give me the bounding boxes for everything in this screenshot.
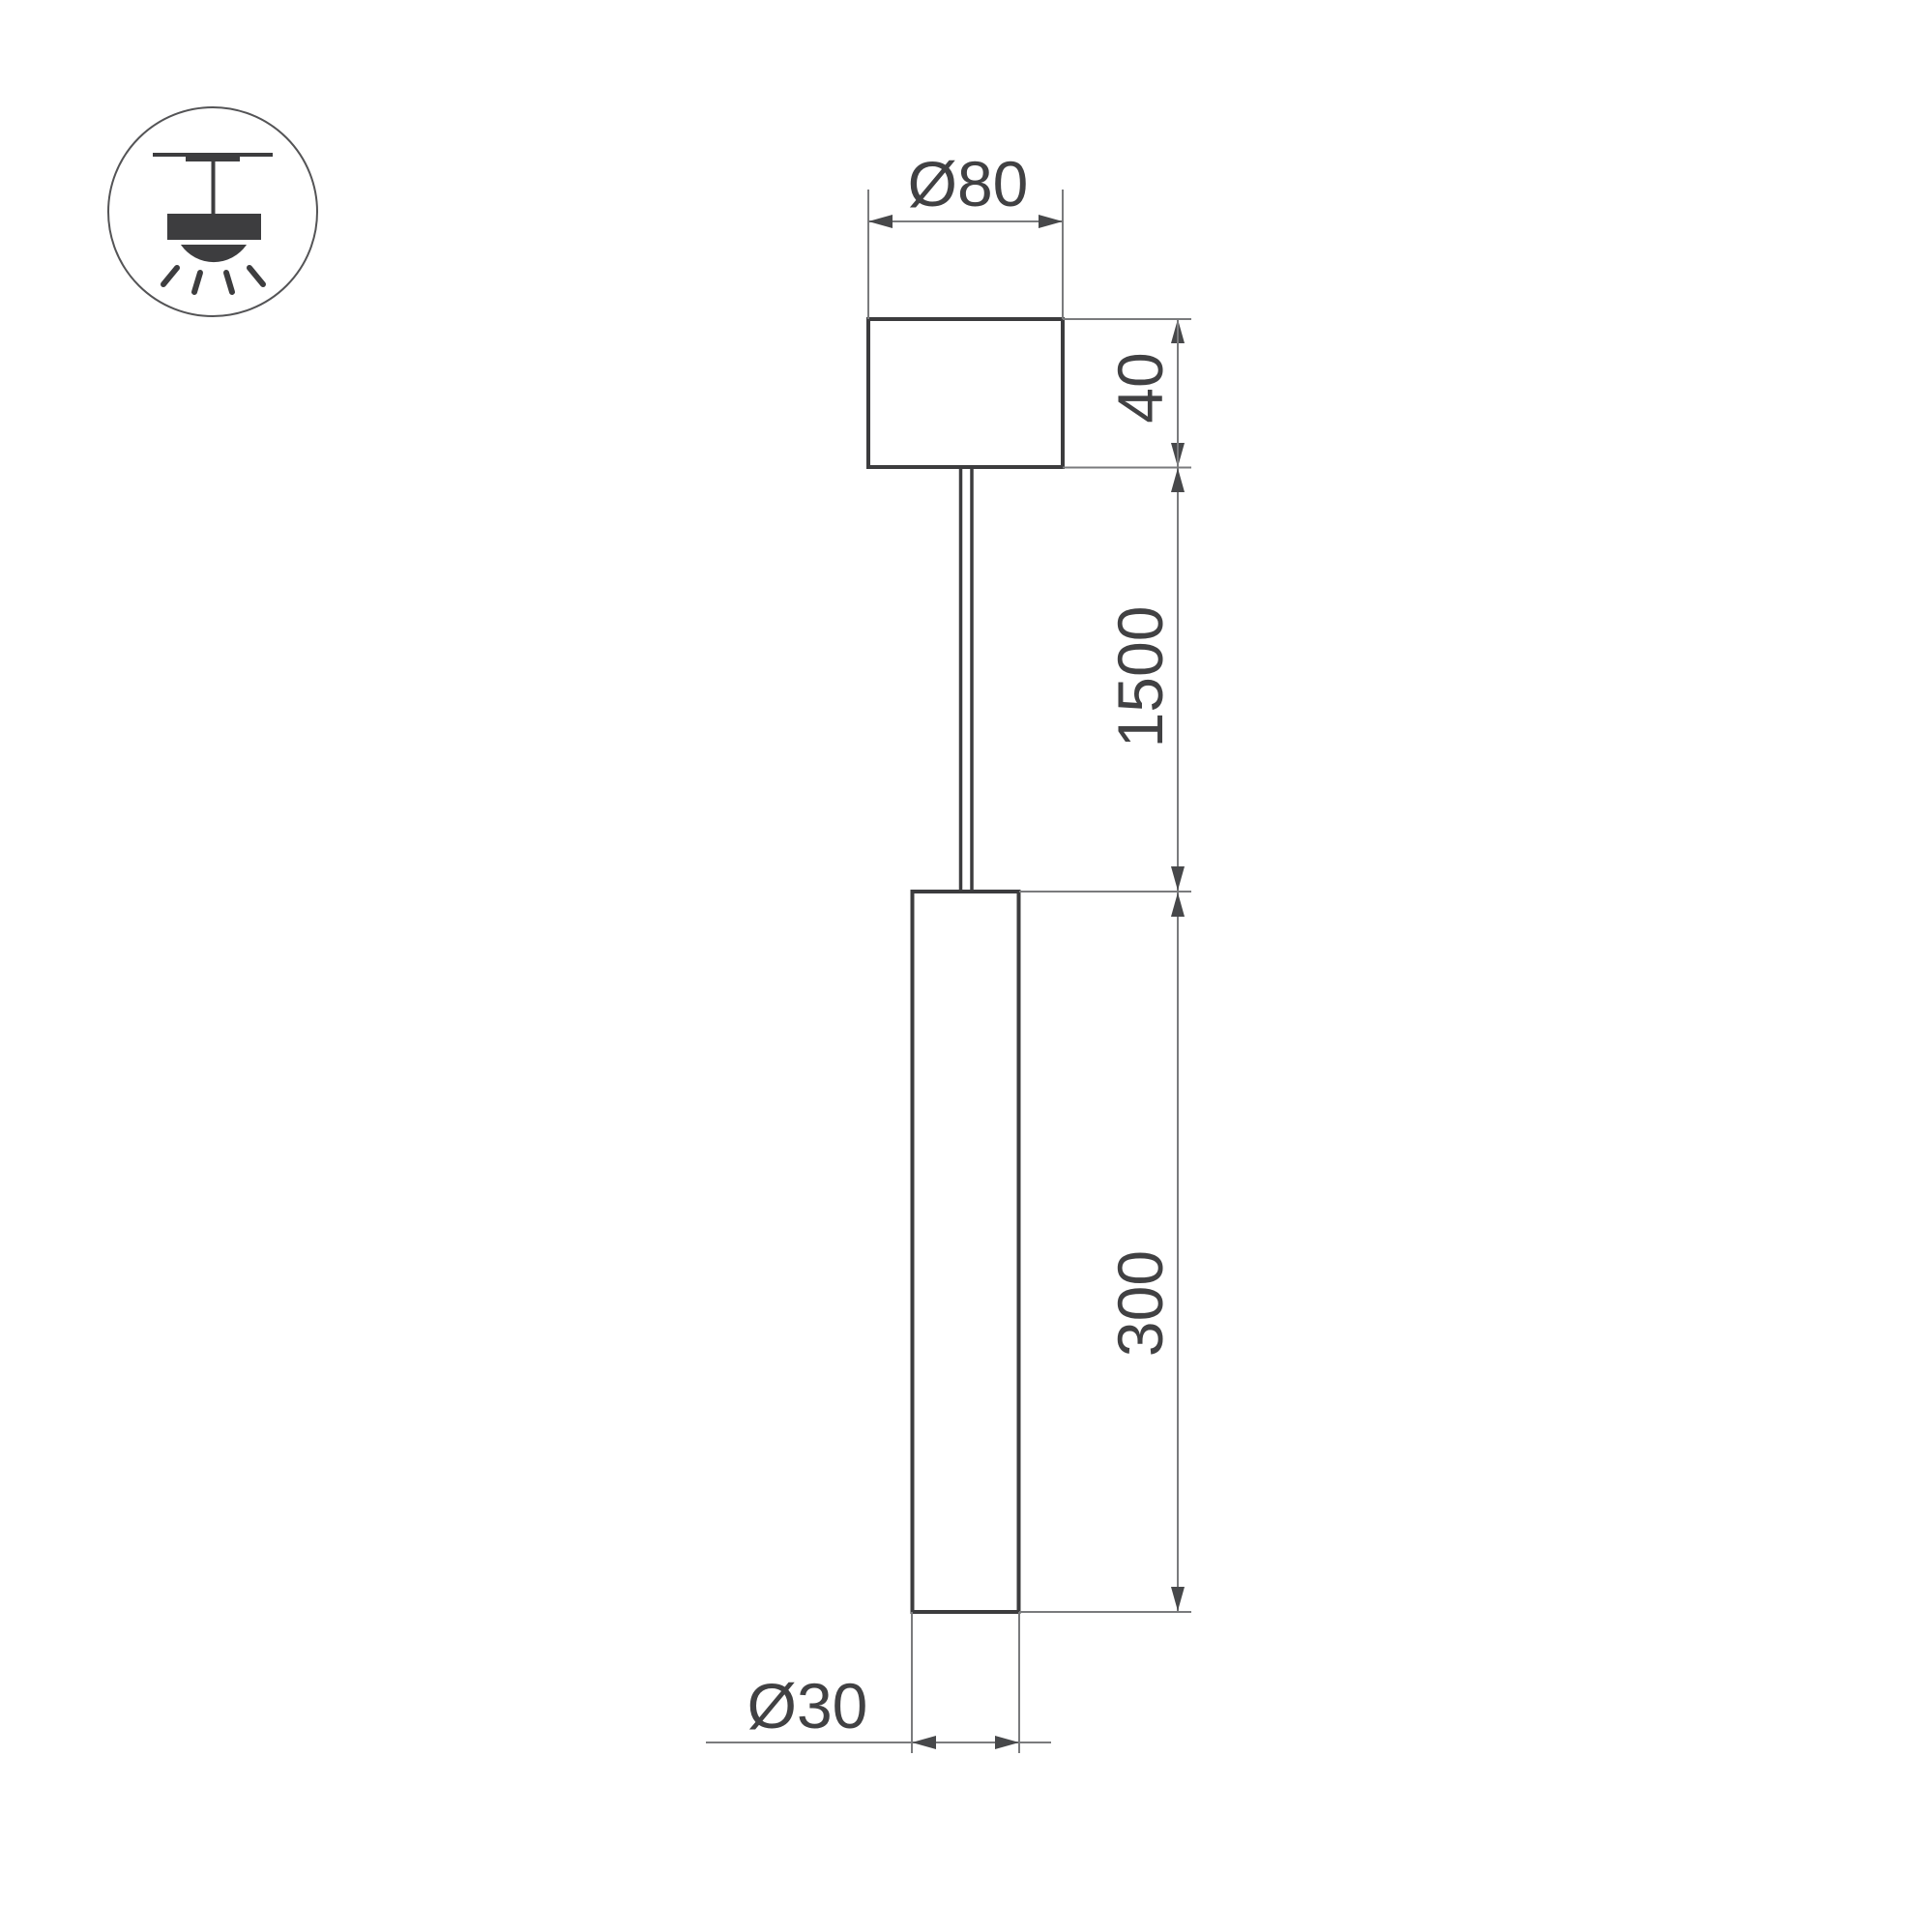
ceiling-pendant-light-icon	[108, 107, 317, 316]
dim-label-suspension-length: 1500	[1104, 606, 1176, 748]
arrowhead-left	[868, 215, 893, 228]
dim-label-tube-diameter: Ø30	[747, 1670, 868, 1742]
arrowhead-right	[995, 1736, 1019, 1749]
icon-lamp-body	[167, 214, 261, 240]
tube-body-outline	[913, 892, 1019, 1612]
arrowhead-up	[1171, 893, 1185, 917]
arrowhead-down	[1171, 866, 1185, 891]
lamp-drawing	[868, 319, 1063, 1612]
drawing-canvas: Ø80 40 1500	[0, 0, 1932, 1932]
arrowhead-right	[1039, 215, 1063, 228]
arrowhead-down	[1171, 1587, 1185, 1611]
dimension-tube-diameter: Ø30	[706, 1612, 1051, 1753]
dim-label-tube-length: 300	[1104, 1250, 1176, 1357]
dimension-annotations: Ø80 40 1500	[706, 148, 1191, 1753]
arrowhead-up	[1171, 468, 1185, 492]
dimension-canopy-diameter: Ø80	[868, 148, 1063, 319]
dim-label-canopy-diameter: Ø80	[908, 148, 1029, 220]
arrowhead-left	[912, 1736, 936, 1749]
dimension-canopy-height: 40	[1063, 319, 1191, 468]
dim-label-canopy-height: 40	[1104, 352, 1176, 423]
dimension-suspension-length: 1500	[1019, 468, 1191, 892]
canopy-outline	[868, 319, 1063, 467]
technical-drawing-svg: Ø80 40 1500	[0, 0, 1932, 1932]
dimension-tube-length: 300	[1019, 893, 1191, 1612]
